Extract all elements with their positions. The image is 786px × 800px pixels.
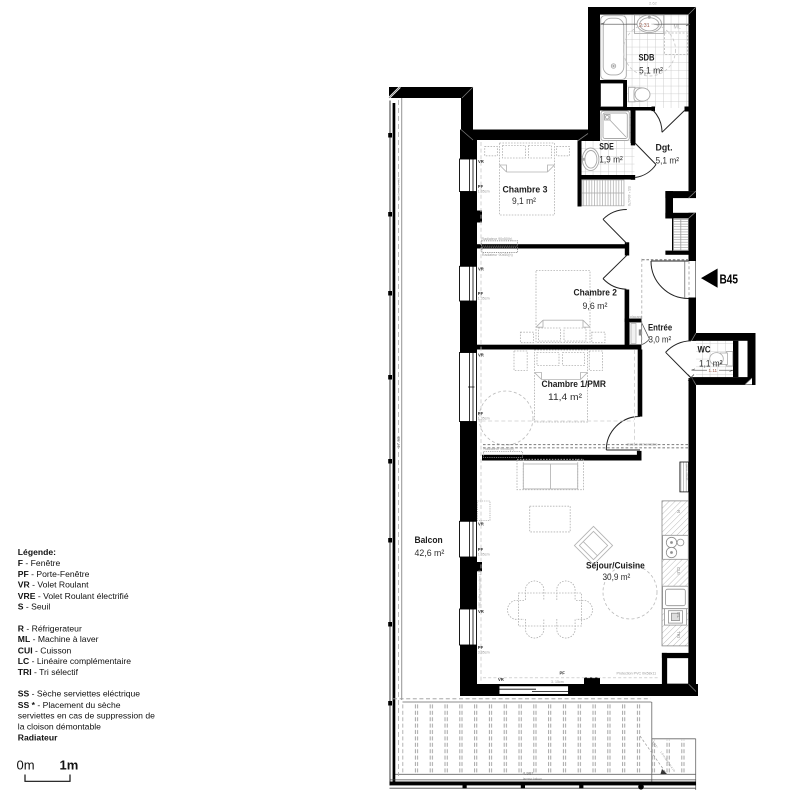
svg-text:LC - Linéaire complémentaire: LC - Linéaire complémentaire bbox=[18, 656, 131, 666]
svg-text:1.11: 1.11 bbox=[709, 368, 718, 373]
svg-text:Chambre 3: Chambre 3 bbox=[503, 185, 548, 195]
svg-text:largeur balcon: largeur balcon bbox=[523, 777, 542, 781]
svg-text:PF: PF bbox=[478, 184, 484, 189]
svg-text:1.35cm: 1.35cm bbox=[478, 297, 490, 301]
svg-text:Radiateur 90x50(h): Radiateur 90x50(h) bbox=[482, 253, 513, 257]
svg-text:VR: VR bbox=[478, 267, 484, 272]
svg-text:PF: PF bbox=[478, 547, 484, 552]
svg-text:4.98*: 4.98* bbox=[523, 771, 534, 776]
svg-text:30,9 m²: 30,9 m² bbox=[603, 572, 631, 582]
svg-text:1m: 1m bbox=[60, 758, 79, 773]
svg-text:1.35cm: 1.35cm bbox=[478, 553, 490, 557]
svg-text:Radiateur: Radiateur bbox=[18, 732, 58, 742]
svg-text:WC: WC bbox=[698, 345, 711, 355]
svg-text:PF: PF bbox=[478, 411, 484, 416]
svg-text:SDB: SDB bbox=[639, 53, 655, 63]
svg-text:3. 15cm: 3. 15cm bbox=[551, 680, 564, 684]
svg-text:Protection PVC l0x58x11: Protection PVC l0x58x11 bbox=[617, 672, 657, 676]
svg-text:0m: 0m bbox=[17, 758, 35, 773]
svg-text:garde corps vitré: garde corps vitré bbox=[397, 177, 401, 200]
svg-text:VR: VR bbox=[478, 353, 484, 358]
svg-text:SS * - Placement du sèche: SS * - Placement du sèche bbox=[18, 700, 121, 710]
svg-text:3.35cm: 3.35cm bbox=[478, 651, 490, 655]
svg-text:VR: VR bbox=[478, 522, 484, 527]
svg-text:Légende:: Légende: bbox=[18, 547, 56, 557]
svg-text:1.35cm: 1.35cm bbox=[478, 190, 490, 194]
svg-text:VR: VR bbox=[478, 609, 484, 614]
svg-text:PF: PF bbox=[478, 291, 484, 296]
svg-text:Chambre 2: Chambre 2 bbox=[574, 288, 618, 298]
svg-text:17.63: 17.63 bbox=[396, 436, 401, 448]
svg-text:PF: PF bbox=[560, 671, 566, 676]
svg-text:serviettes en cas de suppressi: serviettes en cas de suppression de bbox=[18, 711, 155, 721]
svg-text:1.35cm: 1.35cm bbox=[478, 417, 490, 421]
svg-text:Dgt.: Dgt. bbox=[656, 143, 673, 153]
svg-text:F - Fenêtre: F - Fenêtre bbox=[18, 558, 61, 568]
svg-text:VR: VR bbox=[478, 159, 484, 164]
svg-text:Chambre 1/PMR: Chambre 1/PMR bbox=[542, 379, 607, 389]
svg-text:la cloison démontable: la cloison démontable bbox=[18, 722, 101, 732]
svg-text:TRI: TRI bbox=[676, 631, 681, 638]
svg-text:CUI: CUI bbox=[676, 567, 681, 575]
svg-text:VRE coffre volet roulant 1.35: VRE coffre volet roulant 1.35 bbox=[478, 569, 482, 608]
svg-text:B45: B45 bbox=[720, 273, 739, 287]
svg-text:5,1 m²: 5,1 m² bbox=[656, 156, 680, 166]
svg-text:9,6 m²: 9,6 m² bbox=[583, 301, 608, 311]
svg-text:Radiateur 90x50(h): Radiateur 90x50(h) bbox=[484, 447, 515, 451]
svg-text:placard: placard bbox=[630, 315, 642, 319]
svg-text:SS - Sèche serviettes eléctriq: SS - Sèche serviettes eléctrique bbox=[18, 689, 141, 699]
svg-text:ML - Machine à laver: ML - Machine à laver bbox=[18, 634, 99, 644]
svg-text:TRI - Tri sélectif: TRI - Tri sélectif bbox=[18, 667, 79, 677]
svg-text:R: R bbox=[676, 510, 681, 513]
svg-text:ML: ML bbox=[676, 612, 681, 619]
svg-text:3,0 m²: 3,0 m² bbox=[649, 335, 672, 345]
svg-text:PF: PF bbox=[478, 645, 484, 650]
svg-text:Balcon: Balcon bbox=[415, 535, 444, 545]
svg-text:VRE - Volet Roulant électrifié: VRE - Volet Roulant électrifié bbox=[18, 591, 129, 601]
svg-text:SDE: SDE bbox=[599, 142, 614, 152]
svg-text:cloison démontable: cloison démontable bbox=[627, 443, 658, 447]
svg-text:Radiateur 90x50(h): Radiateur 90x50(h) bbox=[482, 237, 513, 241]
svg-text:Entrée: Entrée bbox=[648, 323, 672, 333]
svg-text:SS * 40x170: SS * 40x170 bbox=[627, 186, 631, 206]
svg-text:11,4 m²: 11,4 m² bbox=[548, 392, 582, 402]
svg-text:5,1 m²: 5,1 m² bbox=[639, 66, 663, 76]
svg-text:Séjour/Cuisine: Séjour/Cuisine bbox=[586, 561, 645, 571]
svg-text:gaine 30x30: gaine 30x30 bbox=[685, 464, 689, 481]
svg-text:PF - Porte-Fenêtre: PF - Porte-Fenêtre bbox=[18, 569, 90, 579]
svg-text:R - Réfrigerateur: R - Réfrigerateur bbox=[18, 623, 82, 633]
svg-text:ML: ML bbox=[674, 25, 681, 31]
svg-text:2.62: 2.62 bbox=[649, 1, 658, 6]
svg-text:VR - Volet Roulant: VR - Volet Roulant bbox=[18, 580, 89, 590]
svg-text:42,6 m²: 42,6 m² bbox=[415, 548, 445, 558]
svg-text:VR: VR bbox=[498, 677, 504, 682]
svg-text:9,1 m²: 9,1 m² bbox=[512, 196, 536, 206]
svg-text:S - Seuil: S - Seuil bbox=[18, 602, 51, 612]
svg-text:1,1 m²: 1,1 m² bbox=[699, 359, 722, 369]
svg-text:1,9 m²: 1,9 m² bbox=[599, 155, 622, 165]
svg-text:CUI - Cuisson: CUI - Cuisson bbox=[18, 645, 72, 655]
